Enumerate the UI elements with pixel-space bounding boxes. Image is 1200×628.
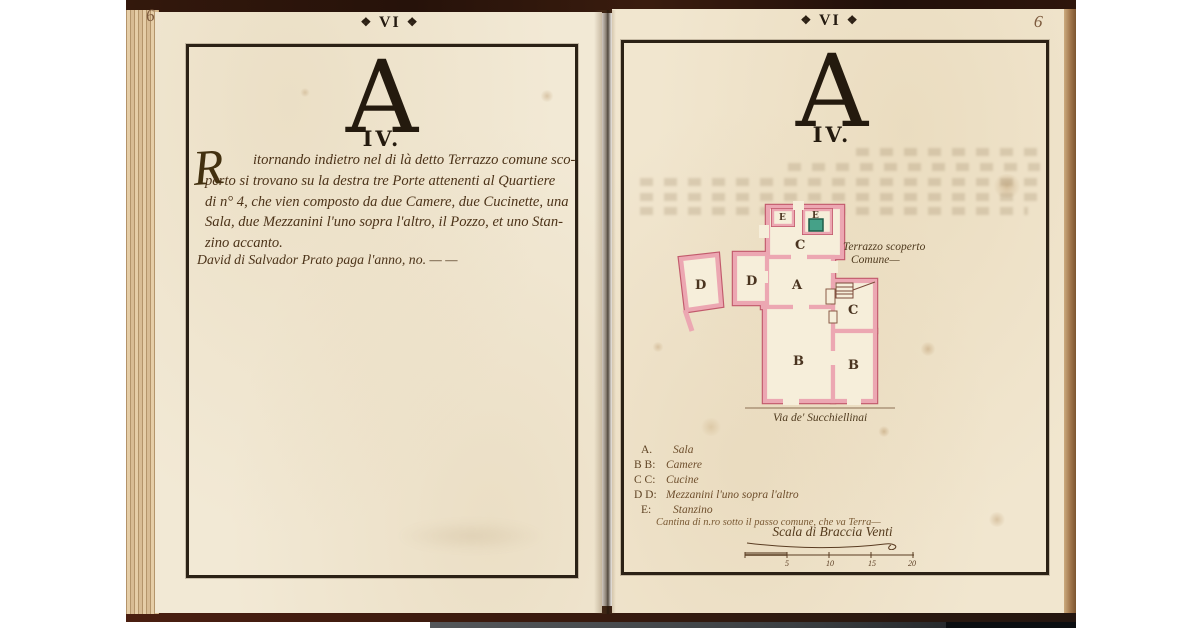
- legend-row: A. Sala: [634, 444, 934, 459]
- manuscript-paragraph: itornando indietro nel di là detto Terra…: [197, 150, 579, 254]
- scale-tick-number: 10: [826, 559, 834, 568]
- manuscript-line: di n° 4, che vien composto da due Camere…: [197, 192, 579, 213]
- left-page-header: ❖ VI ❖: [290, 14, 490, 32]
- manuscript-line: Sala, due Mezzanini l'uno sopra l'altro,…: [197, 212, 579, 233]
- legend-value: Mezzanini l'uno sopra l'altro: [666, 489, 799, 504]
- header-ornament-icon: ❖: [407, 15, 420, 29]
- right-page-header: ❖ VI ❖: [730, 12, 930, 30]
- room-label: E: [779, 213, 786, 223]
- left-page-number-roman: VI: [379, 14, 401, 31]
- room-label: C: [848, 303, 858, 318]
- manuscript-line: perto si trovano su la destra tre Porte …: [197, 171, 579, 192]
- legend-key: C C:: [634, 474, 666, 489]
- scale-tick-number: 15: [868, 559, 876, 568]
- legend-key: B B:: [634, 459, 666, 474]
- room-label: E: [812, 211, 819, 221]
- plan-walls: [681, 207, 875, 401]
- door-opening: [847, 396, 861, 405]
- page-stack-edge-right: [1062, 9, 1076, 613]
- door-opening: [783, 396, 799, 405]
- scale-first-segment: [745, 552, 787, 556]
- room-label: D: [746, 274, 757, 289]
- room-label: A: [791, 278, 803, 293]
- book-gutter: [594, 10, 616, 614]
- legend-key: D D:: [634, 489, 666, 504]
- manuscript-line: zino accanto.: [197, 233, 579, 254]
- folio-number-right: 6: [1033, 12, 1044, 33]
- terrace-annotation-line1: Terrazzo scoperto: [843, 241, 926, 253]
- door-opening: [828, 261, 838, 273]
- room-label: B: [793, 354, 804, 369]
- header-ornament-icon: ❖: [360, 15, 373, 29]
- door-opening: [793, 201, 804, 210]
- wall-niche: [826, 289, 835, 304]
- door-opening: [759, 225, 769, 238]
- header-ornament-icon: ❖: [847, 13, 860, 27]
- manuscript-photo: 6 6 ❖ VI ❖ ❖ VI ❖ A IV. R itornando indi…: [0, 0, 1200, 628]
- legend-row: D D: Mezzanini l'uno sopra l'altro: [634, 489, 934, 504]
- plan-legend: A. Sala B B: Camere C C: Cucine D D: Mez…: [634, 444, 934, 519]
- legend-value: Camere: [666, 459, 702, 474]
- payer-line: David di Salvador Prato paga l'anno, no.…: [197, 252, 579, 268]
- street-name: Via de' Succhiellinai: [773, 412, 867, 424]
- legend-key: A.: [634, 444, 673, 459]
- right-section-numeral: IV.: [636, 122, 1028, 147]
- manuscript-line: itornando indietro nel di là detto Terra…: [197, 150, 579, 171]
- door-opening: [758, 271, 768, 283]
- room-label: D: [695, 278, 706, 293]
- room-label: C: [795, 238, 805, 253]
- right-page-number-roman: VI: [819, 12, 841, 29]
- scale-label: Scala di Braccia Venti: [740, 524, 925, 540]
- left-section-numeral: IV.: [186, 126, 578, 151]
- scale-tick-number: 20: [908, 559, 916, 568]
- scale-tick-number: 5: [785, 559, 789, 568]
- floor-plan: C A D D C B B E E Terrazzo scoperto Comu…: [655, 193, 995, 428]
- legend-value: Sala: [673, 444, 693, 459]
- terrace-annotation-line2: Comune—: [851, 254, 900, 266]
- room-label: B: [848, 358, 859, 373]
- legend-value: Cucine: [666, 474, 699, 489]
- header-ornament-icon: ❖: [800, 13, 813, 27]
- wall-niche: [829, 311, 837, 323]
- legend-row: C C: Cucine: [634, 474, 934, 489]
- door-opening: [793, 301, 809, 311]
- door-opening: [828, 351, 838, 365]
- scale-bar: 5 10 15 20: [742, 548, 920, 568]
- wall-stub: [685, 310, 692, 331]
- legend-row: B B: Camere: [634, 459, 934, 474]
